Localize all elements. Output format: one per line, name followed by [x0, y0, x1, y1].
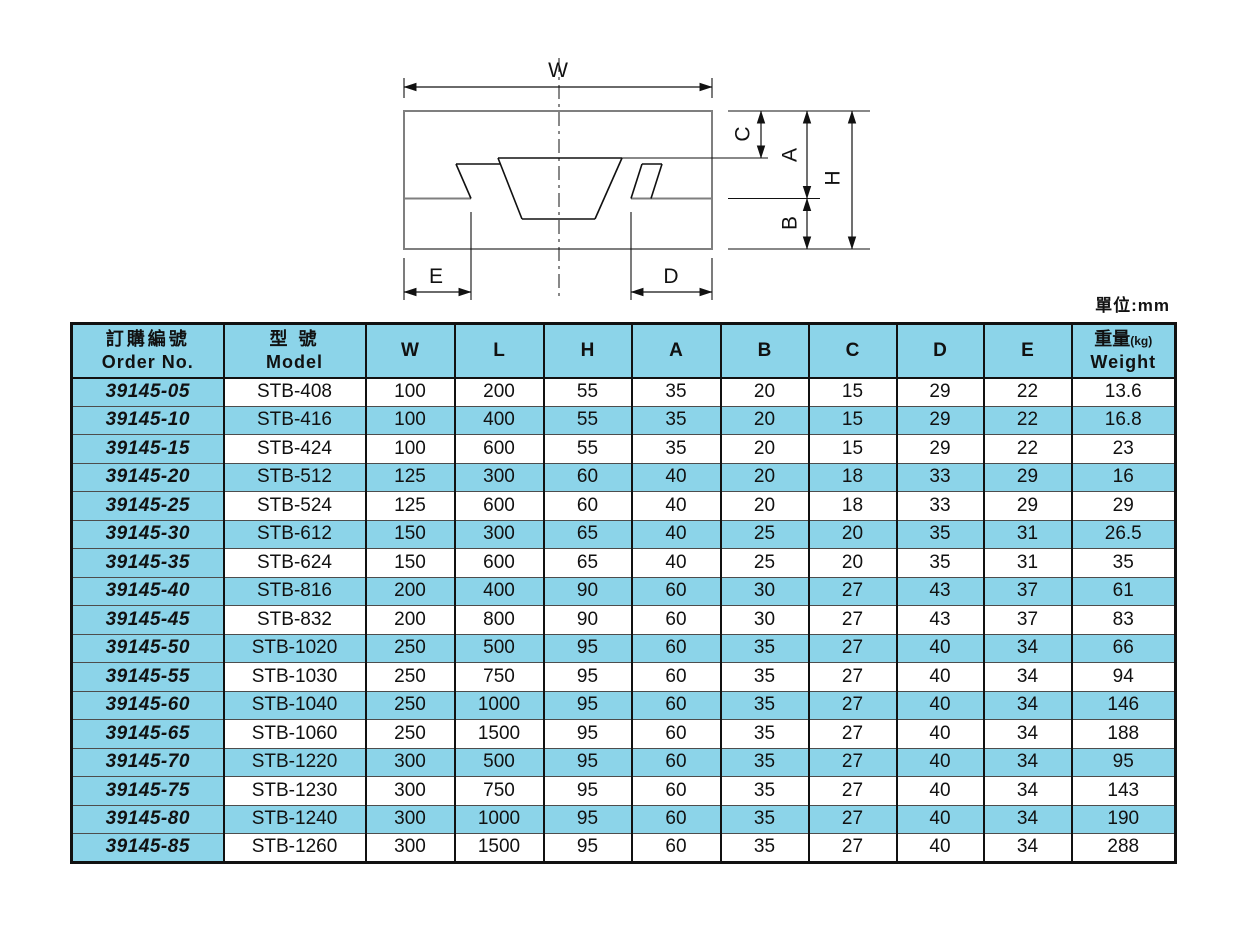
header-model-en: Model	[225, 351, 365, 374]
dim-cell: 18	[809, 463, 897, 492]
dim-cell: 400	[455, 406, 544, 435]
dim-cell: 600	[455, 435, 544, 464]
model-cell: STB-408	[224, 378, 366, 407]
dim-cell: 33	[897, 463, 984, 492]
dim-cell: 500	[455, 748, 544, 777]
dim-cell: 35	[721, 777, 809, 806]
dim-cell: 43	[897, 577, 984, 606]
table-row: 39145-60STB-10402501000956035274034146	[72, 691, 1176, 720]
order-no-cell: 39145-35	[72, 549, 224, 578]
dim-cell: 200	[366, 577, 455, 606]
dimension-diagram: W C A B H E D	[390, 50, 890, 312]
dim-cell: 35	[632, 406, 721, 435]
order-no-cell: 39145-05	[72, 378, 224, 407]
dim-cell: 55	[544, 378, 632, 407]
dim-cell: 27	[809, 777, 897, 806]
table-row: 39145-55STB-103025075095603527403494	[72, 663, 1176, 692]
header-dim-a: A	[632, 324, 721, 378]
model-cell: STB-1060	[224, 720, 366, 749]
weight-cell: 83	[1072, 606, 1176, 635]
dim-cell: 60	[632, 606, 721, 635]
table-row: 39145-25STB-52412560060402018332929	[72, 492, 1176, 521]
header-dim-h: H	[544, 324, 632, 378]
header-row: 訂購編號 Order No. 型 號 Model W L H A B C D E…	[72, 324, 1176, 378]
dim-cell: 750	[455, 663, 544, 692]
header-dim-l: L	[455, 324, 544, 378]
dim-cell: 60	[632, 834, 721, 863]
model-cell: STB-1030	[224, 663, 366, 692]
dim-cell: 34	[984, 834, 1072, 863]
dim-label-b: B	[779, 216, 802, 230]
order-no-cell: 39145-85	[72, 834, 224, 863]
dim-cell: 20	[721, 492, 809, 521]
dim-cell: 35	[721, 663, 809, 692]
table-row: 39145-75STB-1230300750956035274034143	[72, 777, 1176, 806]
order-no-cell: 39145-80	[72, 805, 224, 834]
dim-cell: 800	[455, 606, 544, 635]
dim-cell: 150	[366, 520, 455, 549]
model-cell: STB-524	[224, 492, 366, 521]
dim-cell: 1000	[455, 691, 544, 720]
dim-cell: 300	[366, 777, 455, 806]
model-cell: STB-816	[224, 577, 366, 606]
weight-cell: 35	[1072, 549, 1176, 578]
weight-cell: 13.6	[1072, 378, 1176, 407]
table-row: 39145-20STB-51212530060402018332916	[72, 463, 1176, 492]
dim-cell: 40	[632, 549, 721, 578]
dim-cell: 1500	[455, 834, 544, 863]
dim-cell: 34	[984, 720, 1072, 749]
order-no-cell: 39145-75	[72, 777, 224, 806]
dim-cell: 60	[632, 777, 721, 806]
model-cell: STB-624	[224, 549, 366, 578]
dim-cell: 55	[544, 406, 632, 435]
dim-cell: 95	[544, 720, 632, 749]
dim-cell: 60	[544, 463, 632, 492]
dim-cell: 600	[455, 549, 544, 578]
dim-label-c: C	[732, 126, 755, 141]
header-weight-unit: (kg)	[1130, 334, 1152, 348]
unit-note: 單位:mm	[1020, 291, 1170, 316]
dim-cell: 34	[984, 805, 1072, 834]
header-dim-c: C	[809, 324, 897, 378]
dim-cell: 90	[544, 577, 632, 606]
dim-cell: 750	[455, 777, 544, 806]
dim-cell: 35	[721, 691, 809, 720]
dim-cell: 15	[809, 435, 897, 464]
dim-cell: 500	[455, 634, 544, 663]
dim-cell: 20	[809, 520, 897, 549]
dim-cell: 27	[809, 805, 897, 834]
weight-cell: 61	[1072, 577, 1176, 606]
dim-cell: 40	[897, 834, 984, 863]
weight-cell: 143	[1072, 777, 1176, 806]
dim-cell: 100	[366, 378, 455, 407]
dim-cell: 65	[544, 520, 632, 549]
dim-cell: 150	[366, 549, 455, 578]
dim-label-a: A	[779, 148, 802, 162]
spec-table-body: 39145-05STB-40810020055352015292213.6391…	[72, 378, 1176, 863]
dim-cell: 27	[809, 834, 897, 863]
dim-cell: 27	[809, 691, 897, 720]
dim-cell: 20	[721, 463, 809, 492]
weight-cell: 29	[1072, 492, 1176, 521]
dim-cell: 22	[984, 435, 1072, 464]
dim-cell: 15	[809, 378, 897, 407]
dim-cell: 35	[721, 720, 809, 749]
header-model: 型 號 Model	[224, 324, 366, 378]
dim-cell: 27	[809, 634, 897, 663]
dim-cell: 35	[632, 378, 721, 407]
dim-cell: 33	[897, 492, 984, 521]
order-no-cell: 39145-25	[72, 492, 224, 521]
dim-cell: 125	[366, 492, 455, 521]
table-row: 39145-45STB-83220080090603027433783	[72, 606, 1176, 635]
header-model-zh: 型 號	[225, 328, 365, 351]
dim-cell: 95	[544, 663, 632, 692]
dim-cell: 35	[721, 748, 809, 777]
dim-cell: 60	[632, 634, 721, 663]
header-dim-b: B	[721, 324, 809, 378]
dim-cell: 250	[366, 691, 455, 720]
dim-cell: 60	[632, 577, 721, 606]
dim-label-w: W	[548, 59, 568, 82]
dim-cell: 31	[984, 549, 1072, 578]
dim-cell: 250	[366, 720, 455, 749]
dim-cell: 20	[721, 435, 809, 464]
weight-cell: 95	[1072, 748, 1176, 777]
dim-label-e: E	[429, 265, 443, 288]
dim-cell: 600	[455, 492, 544, 521]
weight-cell: 26.5	[1072, 520, 1176, 549]
model-cell: STB-832	[224, 606, 366, 635]
model-cell: STB-1040	[224, 691, 366, 720]
dim-cell: 95	[544, 634, 632, 663]
order-no-cell: 39145-60	[72, 691, 224, 720]
dim-cell: 60	[544, 492, 632, 521]
dim-cell: 25	[721, 549, 809, 578]
dim-cell: 37	[984, 577, 1072, 606]
dim-cell: 31	[984, 520, 1072, 549]
dim-cell: 1500	[455, 720, 544, 749]
dim-cell: 34	[984, 748, 1072, 777]
dim-cell: 40	[897, 777, 984, 806]
dim-cell: 95	[544, 805, 632, 834]
header-weight-en: Weight	[1073, 351, 1175, 374]
weight-cell: 188	[1072, 720, 1176, 749]
dim-cell: 29	[897, 406, 984, 435]
header-weight: 重量(kg) Weight	[1072, 324, 1176, 378]
header-dim-e: E	[984, 324, 1072, 378]
header-order-no: 訂購編號 Order No.	[72, 324, 224, 378]
dim-cell: 29	[984, 492, 1072, 521]
dim-cell: 29	[897, 378, 984, 407]
dim-cell: 100	[366, 406, 455, 435]
dim-cell: 40	[632, 463, 721, 492]
weight-cell: 23	[1072, 435, 1176, 464]
dim-cell: 95	[544, 691, 632, 720]
dim-cell: 30	[721, 577, 809, 606]
dim-cell: 20	[721, 378, 809, 407]
weight-cell: 66	[1072, 634, 1176, 663]
header-dim-d: D	[897, 324, 984, 378]
spec-table: 訂購編號 Order No. 型 號 Model W L H A B C D E…	[70, 322, 1177, 864]
dim-cell: 15	[809, 406, 897, 435]
order-no-cell: 39145-30	[72, 520, 224, 549]
dim-cell: 18	[809, 492, 897, 521]
dim-cell: 400	[455, 577, 544, 606]
model-cell: STB-1240	[224, 805, 366, 834]
model-cell: STB-612	[224, 520, 366, 549]
dim-cell: 35	[897, 520, 984, 549]
header-dim-w: W	[366, 324, 455, 378]
dim-cell: 40	[632, 520, 721, 549]
dim-cell: 95	[544, 777, 632, 806]
dim-cell: 37	[984, 606, 1072, 635]
dim-cell: 1000	[455, 805, 544, 834]
table-row: 39145-65STB-10602501500956035274034188	[72, 720, 1176, 749]
header-order-no-zh: 訂購編號	[73, 328, 223, 351]
dim-cell: 40	[632, 492, 721, 521]
dim-cell: 34	[984, 777, 1072, 806]
dim-cell: 300	[366, 748, 455, 777]
order-no-cell: 39145-70	[72, 748, 224, 777]
weight-cell: 288	[1072, 834, 1176, 863]
weight-cell: 16	[1072, 463, 1176, 492]
order-no-cell: 39145-10	[72, 406, 224, 435]
dim-cell: 35	[897, 549, 984, 578]
block-outline	[404, 111, 712, 249]
weight-cell: 190	[1072, 805, 1176, 834]
table-row: 39145-35STB-62415060065402520353135	[72, 549, 1176, 578]
table-row: 39145-10STB-41610040055352015292216.8	[72, 406, 1176, 435]
order-no-cell: 39145-40	[72, 577, 224, 606]
header-weight-zh: 重量	[1094, 329, 1130, 349]
dim-cell: 40	[897, 691, 984, 720]
dim-cell: 27	[809, 606, 897, 635]
model-cell: STB-512	[224, 463, 366, 492]
dim-cell: 20	[721, 406, 809, 435]
dim-label-d: D	[663, 265, 678, 288]
dim-cell: 300	[455, 520, 544, 549]
dim-cell: 34	[984, 691, 1072, 720]
dim-cell: 40	[897, 663, 984, 692]
dim-cell: 22	[984, 406, 1072, 435]
dim-cell: 60	[632, 805, 721, 834]
dim-cell: 250	[366, 663, 455, 692]
header-order-no-en: Order No.	[73, 351, 223, 374]
model-cell: STB-1260	[224, 834, 366, 863]
model-cell: STB-1020	[224, 634, 366, 663]
table-row: 39145-85STB-12603001500956035274034288	[72, 834, 1176, 863]
dim-cell: 20	[809, 549, 897, 578]
dim-cell: 95	[544, 748, 632, 777]
dim-cell: 35	[721, 805, 809, 834]
dim-cell: 29	[897, 435, 984, 464]
dim-cell: 300	[455, 463, 544, 492]
dim-label-h: H	[822, 170, 845, 185]
dim-cell: 35	[632, 435, 721, 464]
dim-cell: 34	[984, 663, 1072, 692]
dim-cell: 22	[984, 378, 1072, 407]
dim-cell: 43	[897, 606, 984, 635]
weight-cell: 146	[1072, 691, 1176, 720]
dim-cell: 27	[809, 577, 897, 606]
table-row: 39145-40STB-81620040090603027433761	[72, 577, 1176, 606]
dim-cell: 300	[366, 834, 455, 863]
dim-cell: 35	[721, 634, 809, 663]
dim-cell: 65	[544, 549, 632, 578]
dim-cell: 27	[809, 720, 897, 749]
table-row: 39145-70STB-122030050095603527403495	[72, 748, 1176, 777]
table-row: 39145-30STB-61215030065402520353126.5	[72, 520, 1176, 549]
model-cell: STB-1220	[224, 748, 366, 777]
dim-cell: 27	[809, 748, 897, 777]
model-cell: STB-416	[224, 406, 366, 435]
dim-cell: 60	[632, 663, 721, 692]
model-cell: STB-424	[224, 435, 366, 464]
order-no-cell: 39145-65	[72, 720, 224, 749]
weight-cell: 16.8	[1072, 406, 1176, 435]
dim-cell: 40	[897, 720, 984, 749]
table-row: 39145-50STB-102025050095603527403466	[72, 634, 1176, 663]
dim-cell: 30	[721, 606, 809, 635]
dim-cell: 90	[544, 606, 632, 635]
model-cell: STB-1230	[224, 777, 366, 806]
order-no-cell: 39145-55	[72, 663, 224, 692]
dim-cell: 60	[632, 748, 721, 777]
dim-cell: 200	[455, 378, 544, 407]
dim-cell: 35	[721, 834, 809, 863]
weight-cell: 94	[1072, 663, 1176, 692]
dim-cell: 29	[984, 463, 1072, 492]
dim-cell: 25	[721, 520, 809, 549]
dim-cell: 40	[897, 634, 984, 663]
dim-cell: 100	[366, 435, 455, 464]
dim-cell: 95	[544, 834, 632, 863]
dim-cell: 60	[632, 691, 721, 720]
dim-cell: 125	[366, 463, 455, 492]
order-no-cell: 39145-15	[72, 435, 224, 464]
table-row: 39145-05STB-40810020055352015292213.6	[72, 378, 1176, 407]
dim-cell: 27	[809, 663, 897, 692]
dim-cell: 34	[984, 634, 1072, 663]
order-no-cell: 39145-50	[72, 634, 224, 663]
dim-cell: 40	[897, 805, 984, 834]
step-block-section-drawing: W C A B H E D	[390, 50, 890, 312]
dim-cell: 60	[632, 720, 721, 749]
table-row: 39145-15STB-42410060055352015292223	[72, 435, 1176, 464]
table-row: 39145-80STB-12403001000956035274034190	[72, 805, 1176, 834]
order-no-cell: 39145-45	[72, 606, 224, 635]
dim-cell: 300	[366, 805, 455, 834]
order-no-cell: 39145-20	[72, 463, 224, 492]
dim-cell: 55	[544, 435, 632, 464]
dim-cell: 200	[366, 606, 455, 635]
dim-cell: 40	[897, 748, 984, 777]
dim-cell: 250	[366, 634, 455, 663]
